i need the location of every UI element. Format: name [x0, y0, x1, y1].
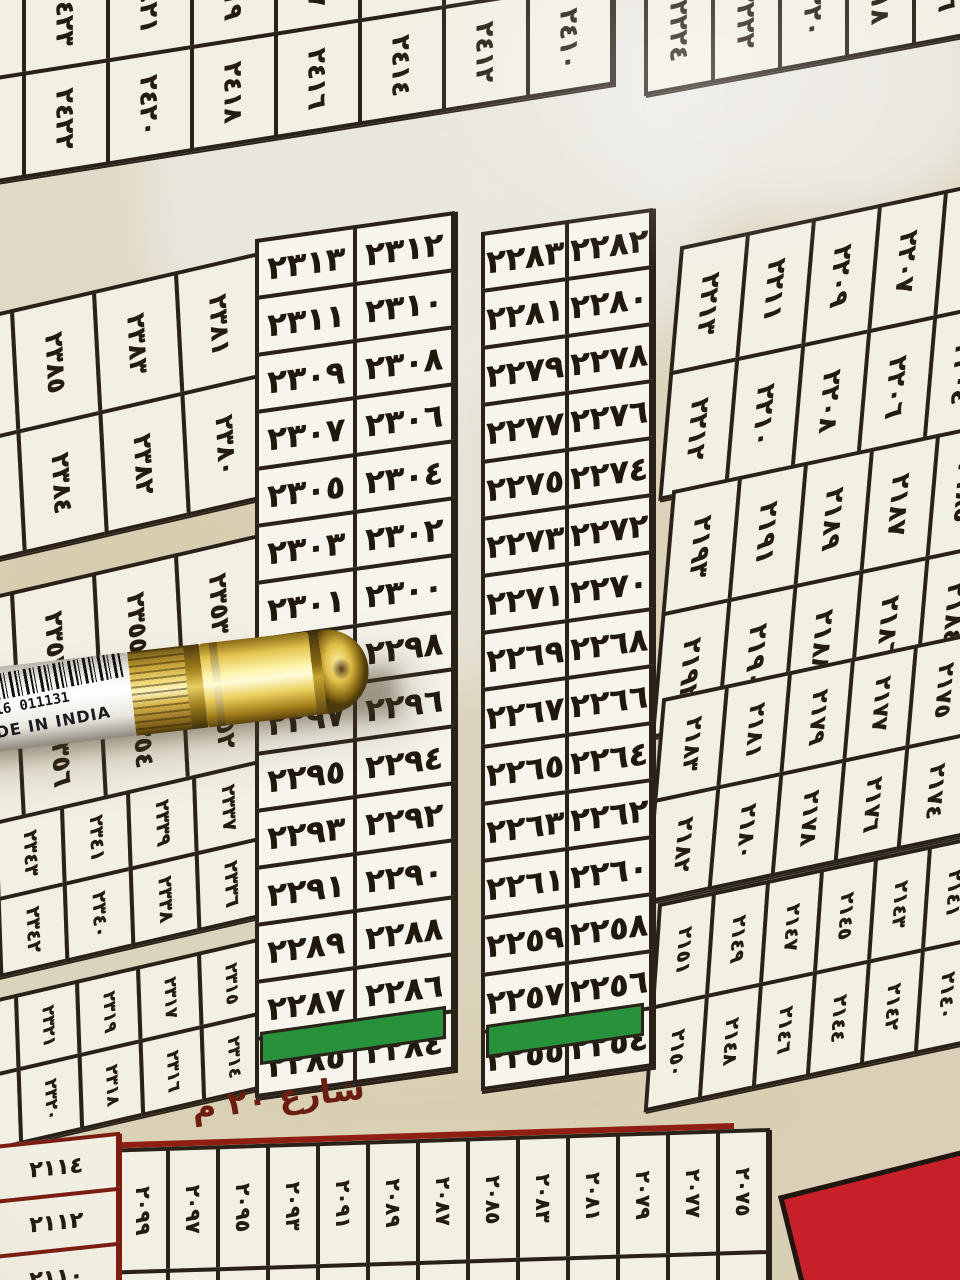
plot-cell: ٢٠٩٣	[266, 1142, 320, 1270]
plot-number: ٢٣٨٤	[48, 449, 76, 515]
plot-cell: ٢٤٢٠	[106, 45, 194, 166]
plot-number: ٢١٤١	[942, 868, 960, 919]
plot-number: ٢٢٧١	[486, 577, 564, 620]
plot-number: ٢٢٩٣	[267, 811, 345, 854]
plot-cell: ٢٢٢٠	[778, 0, 849, 72]
plot-number: ٢١٤٠	[935, 970, 957, 1021]
plot-number: ٢٢٨٧	[267, 982, 345, 1025]
plot-cell: ٢٤١٨	[190, 31, 278, 152]
plot-number: ٢٢٨٣	[486, 235, 564, 278]
plot-cell: ٢٣٨٤	[16, 410, 109, 554]
plot-number: ٢٢١٨	[868, 0, 893, 25]
plot-number: ٢٣٤١	[86, 813, 107, 863]
plot-cell: ٢٠٧٧	[666, 1130, 720, 1258]
plot-cell: ٢٣٤٢	[0, 881, 69, 978]
plot-number: ٢٢٦١	[486, 862, 564, 905]
plot-number: ٢٣٨٠	[212, 411, 240, 477]
plot-number: ٢٢٨٢	[570, 223, 648, 266]
plot-number: ٢٣١٩	[100, 989, 118, 1034]
plot-cell: ٢٠٨٢	[516, 1256, 570, 1280]
plot-number: ٢٢٦٧	[486, 691, 564, 734]
plot-number: ٢٢٨٠	[570, 280, 648, 323]
plot-number: ٢٢٦٨	[570, 622, 648, 665]
plot-number: ٢٠٩٣	[283, 1181, 303, 1230]
plot-cell: ٢٠٨١	[566, 1133, 620, 1261]
plot-number: ٢١٥٠	[665, 1027, 687, 1078]
plot-cell: ٢٠٨٤	[466, 1258, 520, 1280]
plot-number: ٢٢١٣	[694, 270, 724, 337]
plot-number: ٢١٧٤	[921, 761, 948, 820]
plot-number: ٢٢١٢	[684, 395, 714, 462]
plot-number: ٢٠٧٥	[733, 1167, 753, 1216]
plot-number: ٢١٤٣	[888, 879, 910, 930]
plot-number: ٢٣٠٤	[365, 455, 443, 498]
block-bottom: ٢١٠١٢٠٩٩٢٠٩٧٢٠٩٥٢٠٩٣٢٠٩١٢٠٨٩٢٠٨٧٢٠٨٥٢٠٨٣…	[68, 1130, 772, 1280]
plot-number: ٢٢٢٤	[667, 0, 692, 63]
plot-cell: ٢٠٨٣	[516, 1134, 570, 1262]
plot-number: ٢٢٧٦	[570, 394, 648, 437]
plot-number: ٢١٧٩	[804, 687, 831, 746]
plot-number: ٢٣٤٢	[23, 905, 44, 955]
plot-cell: ٢٠٨٠	[566, 1255, 620, 1280]
plot-number: ٢٤٢٠	[137, 73, 162, 138]
plot-number: ٢١٨٥	[951, 456, 960, 523]
plot-cell: ٢٢٢٢	[711, 0, 782, 84]
plot-number: ٢٣٠٧	[267, 412, 345, 455]
plot-number: ٢٣٣٦	[221, 859, 242, 909]
plot-number: ٢٣٠٦	[365, 398, 443, 441]
plot-number: ٢٤٢١	[137, 0, 162, 35]
plot-number: ٢٢٠٩	[826, 242, 856, 309]
plot-cell: ٢٢١٦	[912, 0, 960, 47]
plot-number: ٢٢١٦	[935, 0, 960, 13]
plot-number: ٢٢٦٠	[570, 850, 648, 893]
plot-number: ٢٤١٧	[305, 0, 330, 8]
plot-number: ٢٣١١	[267, 298, 345, 341]
plot-number: ٢٤٢٣	[53, 0, 78, 48]
plot-number: ٢٠٩٩	[133, 1186, 153, 1235]
plot-number: ٢٠٨١	[583, 1172, 603, 1221]
plot-number: ٢٤١٤	[389, 33, 414, 98]
plot-number: ٢١٨٧	[885, 470, 915, 537]
plot-number: ٢١٩٣	[687, 512, 717, 579]
plot-number: ٢٢٧٨	[570, 337, 648, 380]
plot-number: ٢٢٢٠	[801, 0, 826, 38]
plot-number: ٢٠٩٧	[183, 1184, 203, 1233]
plot-cell: ٢٣٨٢	[98, 391, 191, 535]
plot-number: ٢٣٠٢	[365, 512, 443, 555]
plot-number: ٢١٤٤	[827, 993, 849, 1044]
plot-number: ٢٣٠٥	[267, 469, 345, 512]
plot-number: ٢١١٢	[29, 1209, 83, 1237]
plot-cell: ٢٠٨٥	[466, 1136, 520, 1264]
plot-number: ٢٣٣٧	[218, 782, 239, 832]
plot-number: ٢١٩١	[753, 498, 783, 565]
plot-number: ٢٢٦٢	[570, 793, 648, 836]
pen-barrel	[127, 646, 192, 736]
plot-number: ٢٣٨١	[206, 291, 234, 357]
plot-number: ٢٢٠٨	[816, 367, 846, 434]
plot-number: ٢٣٨٢	[130, 430, 158, 496]
plot-number: ٢٣٥٣	[206, 570, 234, 636]
red-zone-parcel	[778, 1132, 960, 1280]
plot-number: ٢٢٧٤	[570, 451, 648, 494]
plot-number: ٢٣٠٠	[365, 569, 443, 612]
plot-number: ٢٠٧٧	[683, 1169, 703, 1218]
plot-number: ٢٣٢١	[39, 1003, 57, 1048]
plot-number: ٢١٤٦	[773, 1004, 795, 1055]
map-photo: ٢٤٢٥٢٤٢٣٢٤٢١٢٤١٩٢٤١٧٢٤١٥٢٤١٣٢٤١١٢٤٢٤٢٤٢٢…	[0, 0, 960, 1280]
plot-number: ٢٠٨٧	[433, 1176, 453, 1225]
plot-number: ٢٣٣٩	[152, 798, 173, 848]
plot-number: ٢١٤٨	[719, 1016, 741, 1067]
plot-number: ٢٣٨٣	[124, 310, 152, 376]
plot-number: ٢١٨٣	[678, 714, 705, 773]
plot-number: ٢٣٤٠	[89, 889, 110, 939]
plot-number: ٢١٤٧	[780, 902, 802, 953]
plot-cell: ٢٠٨٦	[416, 1259, 470, 1280]
plot-cell: ٢٠٩٨	[116, 1269, 170, 1280]
plot-cell: ٢١٧٤	[897, 731, 960, 850]
plot-number: ٢٢٠٦	[882, 353, 912, 420]
plot-number: ٢٢٩١	[267, 868, 345, 911]
plot-number: ٢٢٧٣	[486, 520, 564, 563]
plot-number: ٢١٨٩	[819, 484, 849, 551]
plot-cell: ٢١٧٥	[905, 631, 960, 750]
plot-cell: ٢٣٣٨	[129, 851, 202, 948]
plot-number: ٢٢٦٦	[570, 679, 648, 722]
plot-number: ٢٢٩٤	[365, 740, 443, 783]
plot-number: ٢١٧٥	[930, 660, 957, 719]
pen-tip-dome	[318, 625, 373, 714]
plot-number: ٢٢٦٩	[486, 634, 564, 677]
plot-cell: ٢١٤٠	[914, 936, 960, 1055]
plot-number: ٢٣١٦	[163, 1048, 181, 1093]
plot-number: ٢٢٢٢	[734, 0, 759, 50]
plot-number: ٢٢٨٨	[365, 911, 443, 954]
plot-number: ٢٤١٠	[557, 6, 582, 71]
plot-cell: ٢٠٩١	[316, 1141, 370, 1269]
plot-number: ٢٤١٨	[221, 59, 246, 124]
plot-cell: ٢٠٨٩	[366, 1139, 420, 1267]
plot-number: ٢٣٤٣	[20, 828, 41, 878]
plot-number: ٢٣٠٣	[267, 526, 345, 569]
plot-number: ٢٢٠٧	[892, 228, 922, 295]
plot-number: ٢٠٩١	[333, 1180, 353, 1229]
plot-cell: ٢٠٩٦	[166, 1267, 220, 1280]
plot-cell: ٢٠٧٨	[616, 1253, 670, 1280]
plot-number: ٢١٤٩	[726, 913, 748, 964]
plot-number: ٢١٤٥	[834, 891, 856, 942]
plot-number: ٢٣٢٠	[41, 1076, 59, 1121]
plot-number: ٢٢١٠	[750, 381, 780, 448]
plot-cell: ٢٢٢٤	[644, 0, 715, 96]
plot-cell: ٢٠٧٩	[616, 1131, 670, 1259]
plot-number: ٢٢٦٥	[486, 748, 564, 791]
plot-number: ٢٠٨٣	[533, 1173, 553, 1222]
plot-number: ٢١١٤	[29, 1154, 83, 1182]
plot-number: ٢٢٦٣	[486, 805, 564, 848]
plot-number: ٢٠٨٥	[483, 1175, 503, 1224]
plot-cell: ٢٣٤٠	[63, 866, 136, 963]
plot-cell: ٢٣٢٠	[17, 1053, 85, 1145]
plot-number: ٢٢٧٢	[570, 508, 648, 551]
plot-cell: ٢٠٨٨	[366, 1261, 420, 1280]
plot-cell: ٢٠٩٩	[116, 1147, 170, 1275]
plot-number: ٢٣٨٥	[42, 329, 70, 395]
plot-number: ٢٢٩٠	[365, 854, 443, 897]
plot-number: ٢٣٠٩	[267, 355, 345, 398]
plot-number: ٢٢٧٥	[486, 463, 564, 506]
plot-number: ٢٢٥٩	[486, 919, 564, 962]
plot-cell: ٢٤٢٢	[22, 58, 110, 179]
plot-cell: ٢٠٨٧	[416, 1137, 470, 1265]
plot-number: ٢٠٩٥	[233, 1183, 253, 1232]
block-west-strip: ٢١١٤٢١١٢٢١١٠٢١٠٨	[0, 1134, 122, 1280]
plot-number: ٢٢٥٨	[570, 907, 648, 950]
plot-number: ٢٣١٤	[224, 1034, 242, 1079]
plot-number: ٢٠٨٩	[383, 1178, 403, 1227]
plot-number: ٢٢٥٦	[570, 964, 648, 1007]
plot-number: ٢٢٥٧	[486, 976, 564, 1019]
plot-number: ٢١٨١	[741, 701, 768, 760]
plot-cell: ٢٤١٦	[274, 18, 362, 139]
plot-cell: ٢٠٩٤	[216, 1266, 270, 1280]
plot-cell: ٢٤١٠	[526, 0, 614, 99]
plot-number: ٢١٨٢	[669, 815, 696, 874]
plot-number: ٢٣١٨	[102, 1062, 120, 1107]
plot-cell: ٢٠٩٥	[216, 1144, 270, 1272]
plot-number: ٢٢٧٠	[570, 565, 648, 608]
plot-number: ٢٤٢٢	[53, 86, 78, 151]
plot-number: ٢٢٨١	[486, 292, 564, 335]
plot-number: ٢٣٠٨	[365, 341, 443, 384]
plot-number: ٢٢٠٤	[948, 339, 960, 406]
plot-number: ٢١١٠	[29, 1264, 83, 1280]
plot-cell: ٢٠٧٦	[666, 1252, 720, 1280]
plot-cell: ٢٠٩٧	[166, 1145, 220, 1273]
central-table-east: ٢٢٨٣٢٢٨٢٢٢٨١٢٢٨٠٢٢٧٩٢٢٧٨٢٢٧٧٢٢٧٦٢٢٧٥٢٢٧٤…	[482, 209, 656, 1094]
plot-number: ٢١٧٦	[858, 775, 885, 834]
plot-number: ٢١٥١	[672, 925, 694, 976]
plot-number: ٢٠٧٩	[633, 1170, 653, 1219]
plot-number: ٢٢٦٤	[570, 736, 648, 779]
plot-number: ٢٢١١	[760, 256, 790, 323]
plot-number: ٢٢٧٩	[486, 349, 564, 392]
plot-number: ٢٣١٢	[365, 227, 443, 270]
plot-number: ٢٣١٠	[365, 284, 443, 327]
plot-number: ٢١٤٢	[881, 982, 903, 1033]
plot-number: ٢٣٥٥	[124, 589, 152, 655]
plot-number: ٢٢٧٧	[486, 406, 564, 449]
plot-number: ٢٢٩٥	[267, 754, 345, 797]
plot-number: ٢٣٣٨	[155, 874, 176, 924]
plot-cell: ٢٤١٤	[358, 5, 446, 126]
plot-cell: ٢٠٧٤	[716, 1250, 770, 1280]
plot-number: ٢٣١٥	[222, 961, 240, 1006]
plot-number: ٢١٨٠	[732, 801, 759, 860]
plot-number: ٢٣١٣	[267, 241, 345, 284]
plot-cell: ٢٠٧٥	[716, 1128, 770, 1256]
plot-number: ٢٢٨٦	[365, 968, 443, 1011]
plot-number: ٢٤١٩	[221, 0, 246, 21]
plot-number: ٢١٧٨	[795, 788, 822, 847]
plot-number: ٢١٧٧	[867, 674, 894, 733]
plot-cell: ٢٠٩٠	[316, 1263, 370, 1280]
plot-number: ٢٣٠١	[267, 583, 345, 626]
plot-number: ٢٣١٧	[161, 975, 179, 1020]
plot-number: ٢٤١٦	[305, 46, 330, 111]
pen-cap	[199, 632, 318, 728]
plot-number: ٢٢٩٢	[365, 797, 443, 840]
plot-cell: ٢٠٩٢	[266, 1264, 320, 1280]
plot-number: ٢٤١٢	[473, 20, 498, 85]
plot-cell: ٢٤١٢	[442, 0, 530, 112]
plot-number: ٢٢٨٩	[267, 925, 345, 968]
